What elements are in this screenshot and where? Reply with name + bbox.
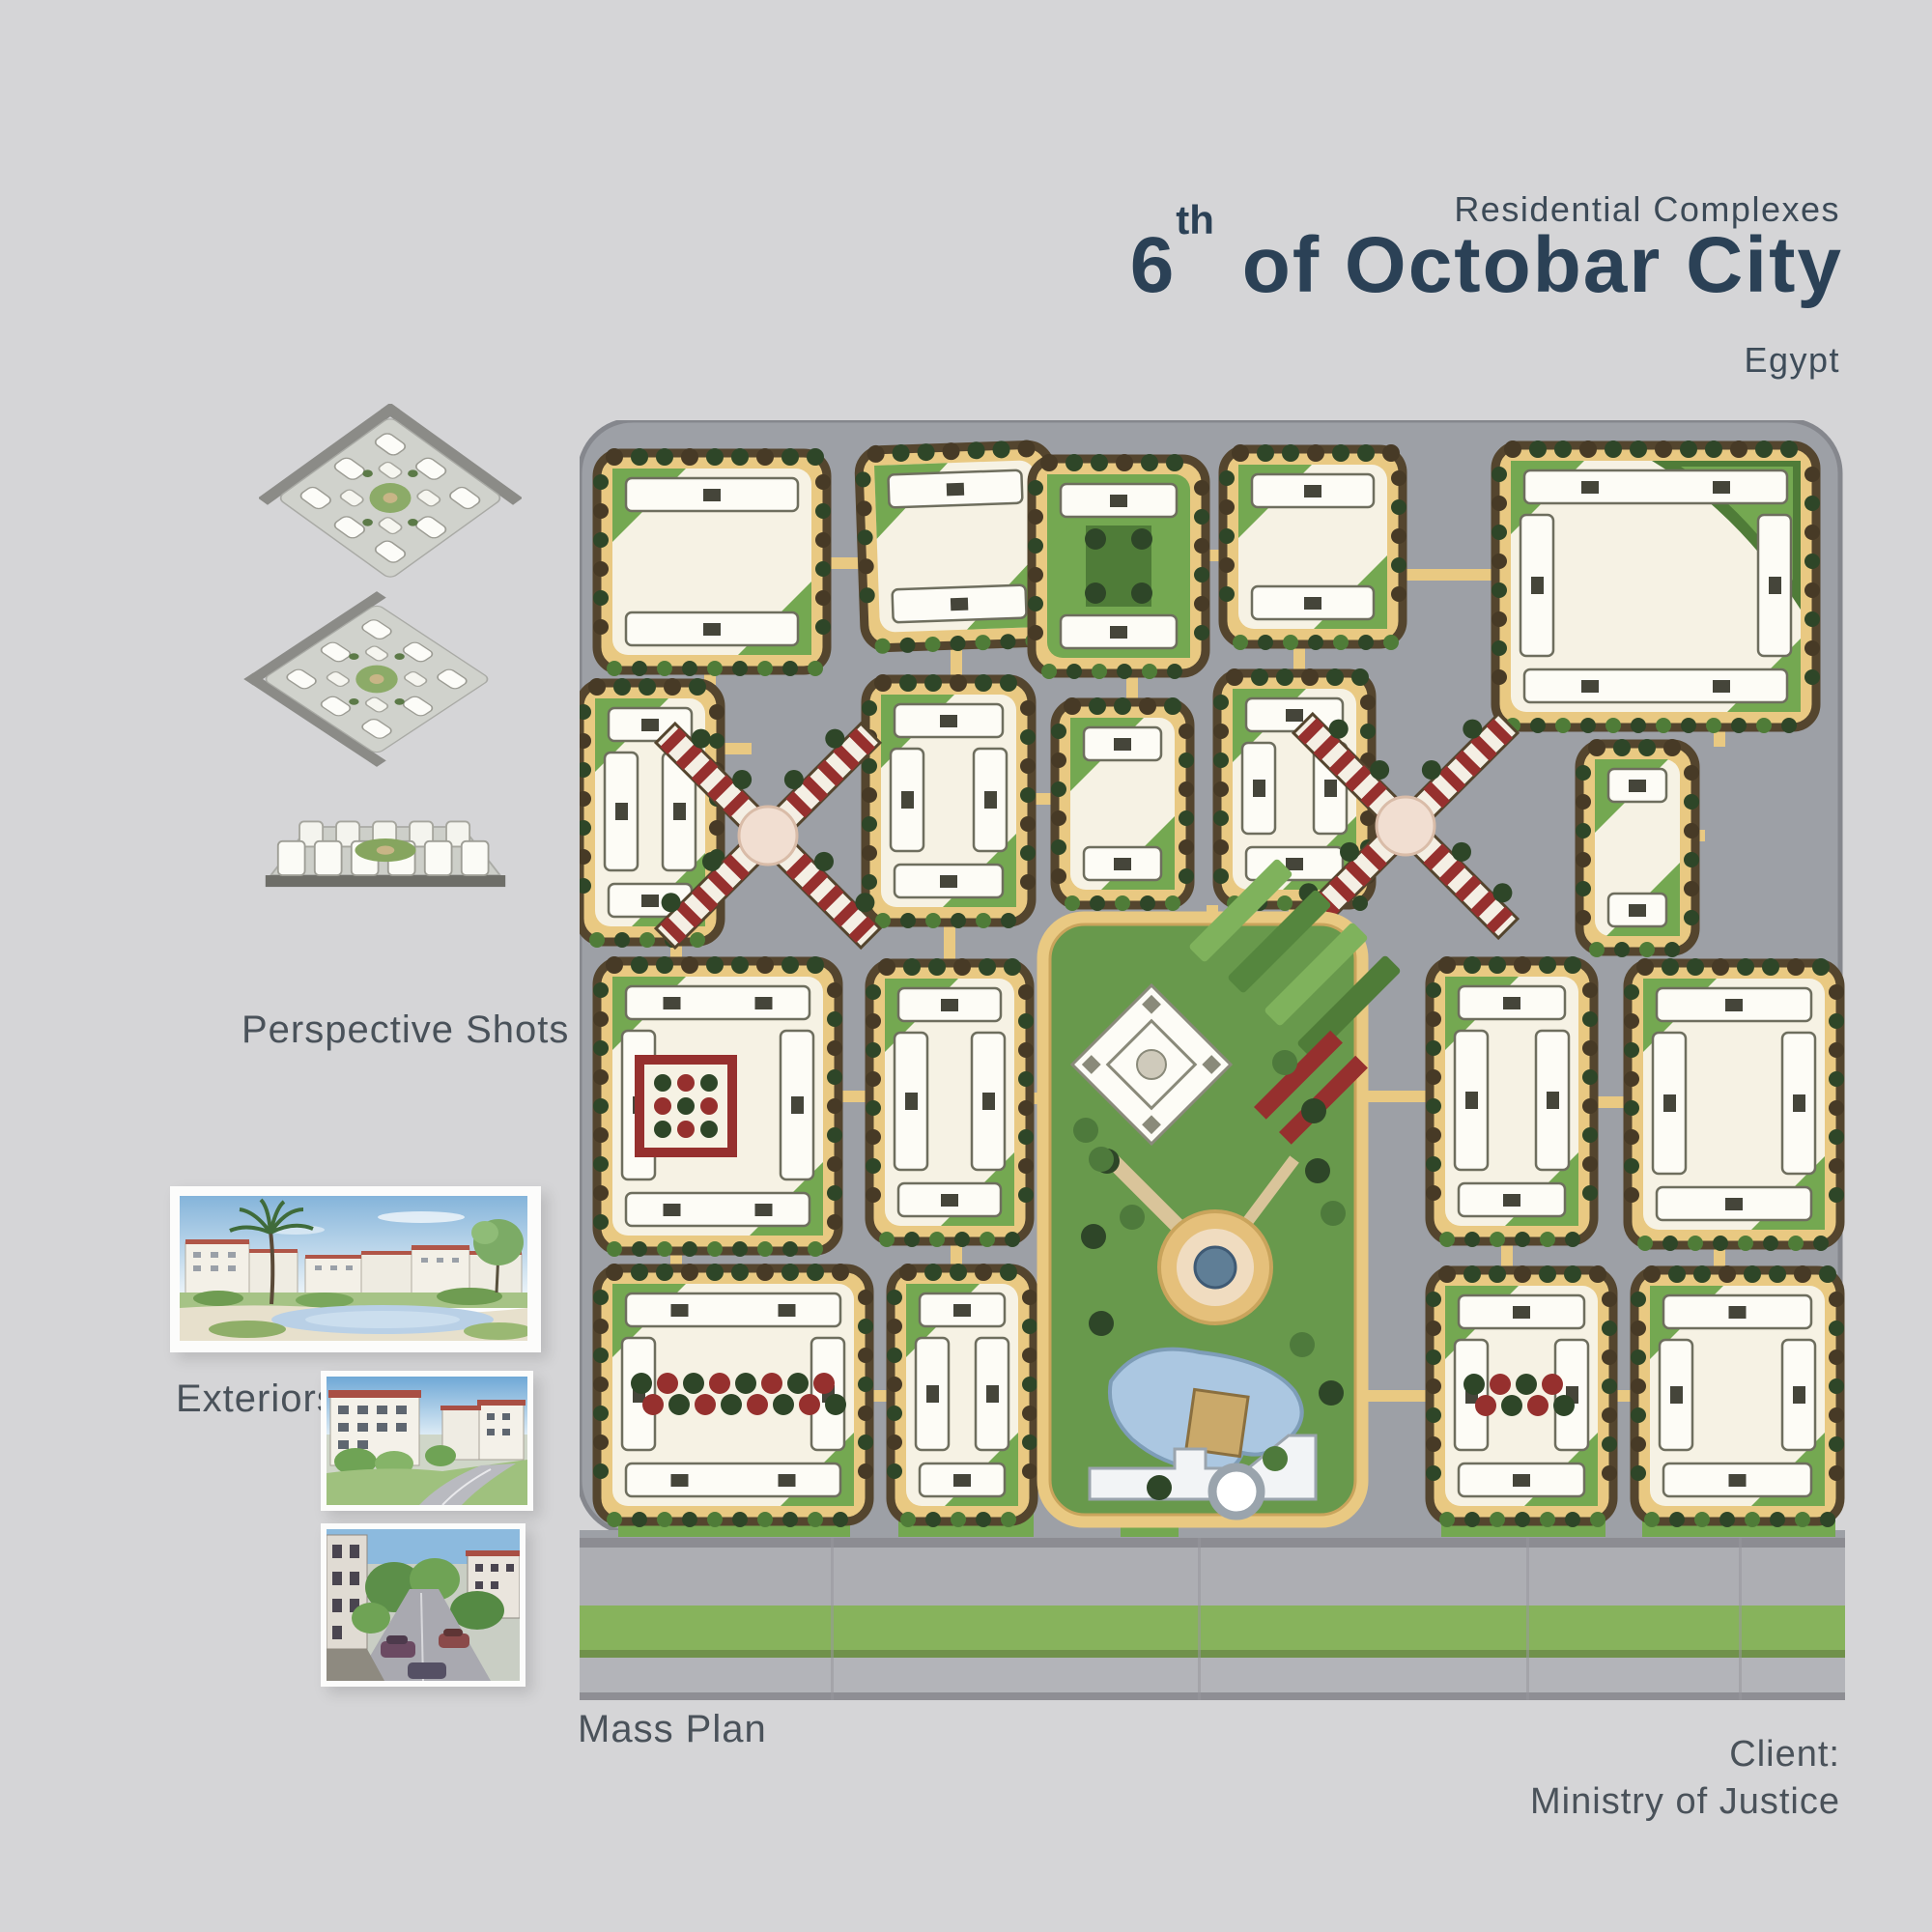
country-label: Egypt [1744,340,1840,381]
title-ordinal-suffix: th [1176,197,1214,242]
portfolio-page: Residential Complexes 6th of Octobar Cit… [0,0,1932,1932]
exterior-street-sketch [327,1377,527,1505]
aerial-render-high [259,404,522,592]
perspective-shots-label: Perspective Shots [241,1009,569,1052]
client-label: Client: [1530,1731,1840,1778]
title-number: 6 [1130,221,1177,309]
mass-plan-label: Mass Plan [578,1708,767,1751]
mass-plan-drawing [580,420,1845,1700]
perspective-thumbnail-1 [259,404,522,592]
exterior-rendering-1 [170,1186,541,1352]
aerial-render-low [251,763,520,891]
client-name: Ministry of Justice [1530,1778,1840,1826]
perspective-thumbnail-3 [251,763,520,891]
page-title: 6th of Octobar City [1130,220,1843,311]
perspective-thumbnail-2 [241,587,512,771]
client-block: Client: Ministry of Justice [1530,1731,1840,1827]
exterior-rendering-2 [321,1371,533,1511]
title-rest: of Octobar City [1218,221,1843,309]
exterior-panorama-sketch [180,1196,527,1341]
exterior-avenue-sketch [327,1529,520,1681]
aerial-render-mid [241,587,512,771]
exterior-rendering-3 [321,1523,526,1687]
exteriors-label: Exteriors [176,1378,337,1421]
